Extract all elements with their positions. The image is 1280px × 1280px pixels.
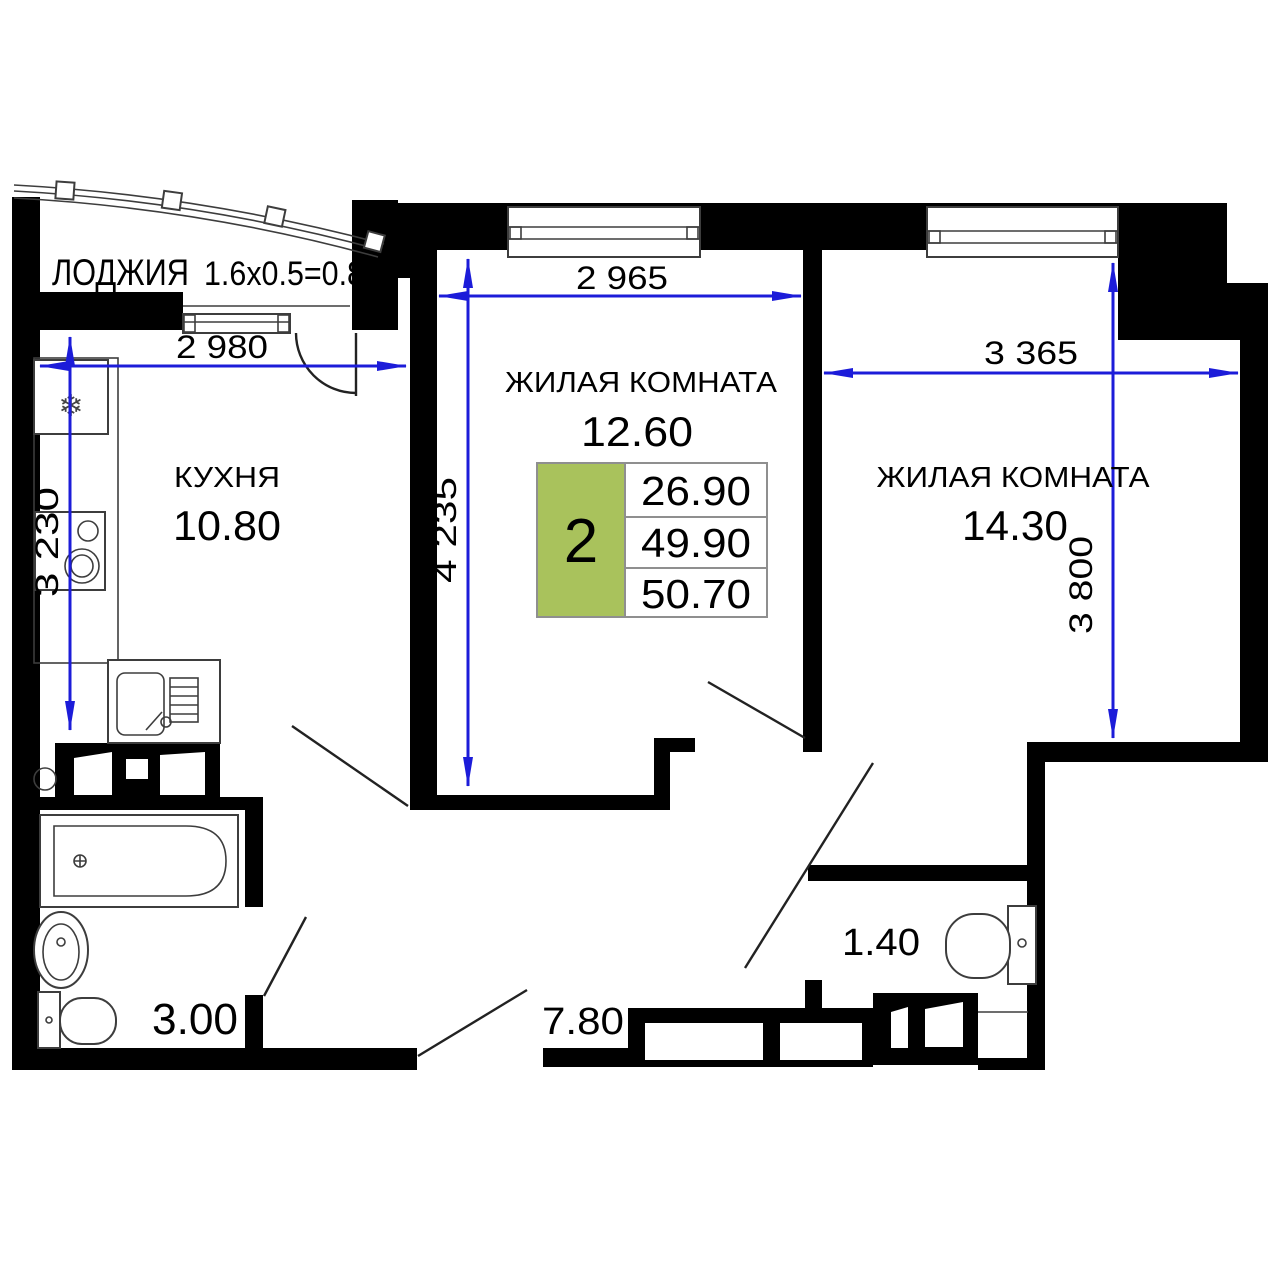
floor-plan-canvas: ❄ (0, 0, 1280, 1280)
kitchen-label: КУХНЯ (174, 462, 280, 494)
summary-floor-area: 49.90 (641, 520, 751, 566)
bathroom-area: 3.00 (152, 995, 238, 1044)
dim-living2-depth: 3 800 (1063, 536, 1099, 634)
toilet-wc (946, 906, 1036, 984)
dim-living1-width: 2 965 (576, 260, 668, 296)
living1-area: 12.60 (581, 408, 693, 455)
living2-label: ЖИЛАЯ КОМНАТА (877, 462, 1151, 494)
loggia-label: ЛОДЖИЯ (52, 252, 189, 293)
toilet-bathroom (38, 992, 116, 1048)
summary-total-area: 50.70 (641, 571, 751, 617)
bathtub (40, 815, 238, 907)
dim-living2-width: 3 365 (984, 335, 1078, 371)
kitchen-door-swing (292, 726, 408, 806)
entry-door-swing (418, 990, 527, 1056)
bathroom-sink (34, 912, 88, 988)
window-living2 (927, 207, 1118, 257)
summary-rooms: 2 (564, 507, 598, 576)
living1-door-swing (708, 682, 805, 738)
wc-area: 1.40 (842, 922, 920, 964)
loggia-formula: 1.6x0.5=0.8 (204, 255, 364, 293)
bathroom-door-swing (264, 917, 306, 996)
dim-kitchen-depth: 3 230 (29, 487, 65, 597)
summary-living-area: 26.90 (641, 468, 751, 514)
hallway-area: 7.80 (542, 1001, 624, 1043)
window-living1 (508, 207, 700, 257)
kitchen-area: 10.80 (173, 502, 281, 549)
summary-table: 2 26.90 49.90 50.70 (537, 463, 767, 617)
living2-area: 14.30 (962, 502, 1068, 549)
wc-fixtures (946, 906, 1036, 984)
living1-label: ЖИЛАЯ КОМНАТА (505, 367, 778, 399)
kitchen-sink (108, 660, 220, 743)
dim-living1-depth: 4 235 (427, 477, 463, 583)
dim-kitchen-width: 2 980 (176, 329, 268, 365)
floor-plan: ❄ (0, 0, 1280, 1280)
